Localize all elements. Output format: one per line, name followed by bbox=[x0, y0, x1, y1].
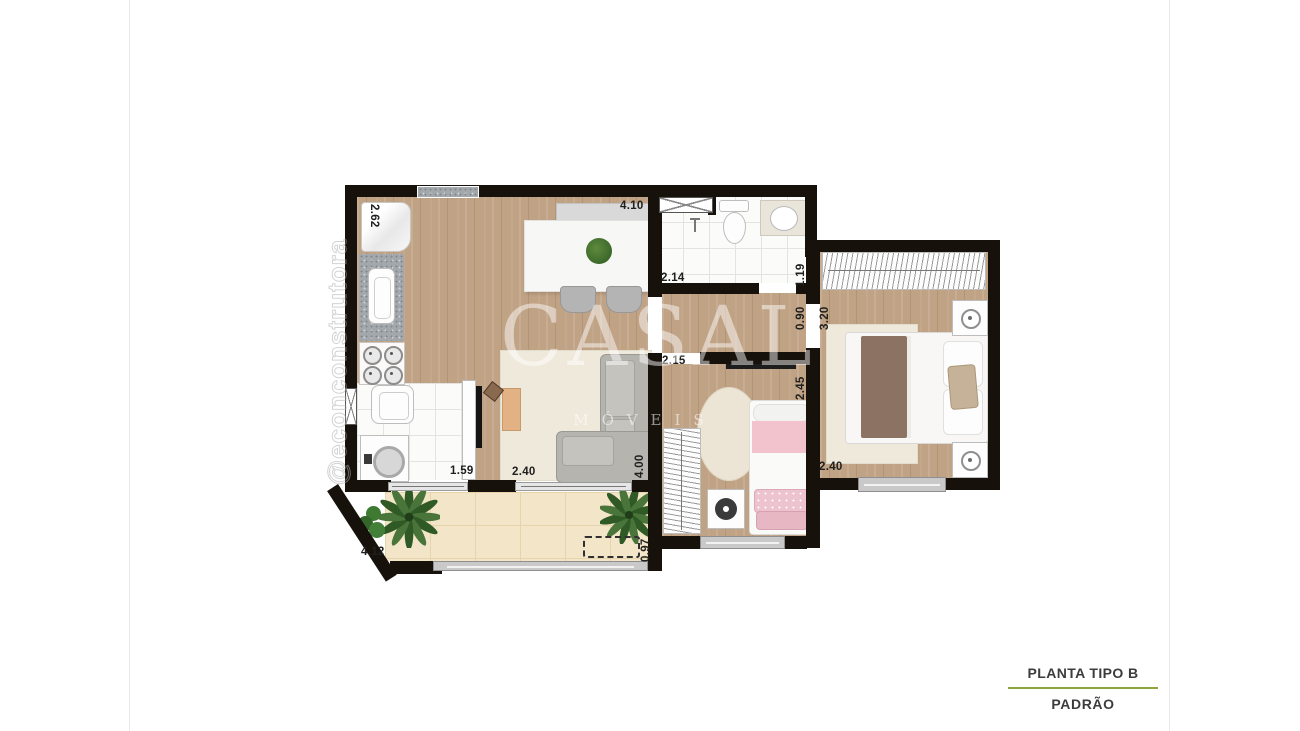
living-sliding-door bbox=[515, 482, 632, 491]
master-bedroom-window bbox=[858, 477, 946, 492]
bedroom2-wardrobe bbox=[663, 428, 701, 534]
dim-bathroom-width: 2.14 bbox=[661, 272, 685, 284]
wall bbox=[345, 480, 391, 492]
burner-icon bbox=[363, 346, 382, 365]
wall bbox=[815, 240, 1000, 252]
pink-pillow bbox=[756, 511, 808, 530]
dining-chair bbox=[606, 286, 642, 313]
sink-basin bbox=[374, 277, 391, 319]
wall bbox=[806, 478, 820, 548]
dim-dining-top: 4.10 bbox=[620, 200, 644, 212]
nightstand bbox=[952, 442, 988, 478]
washing-machine bbox=[360, 435, 409, 482]
single-bed bbox=[749, 400, 814, 535]
left-frame-line bbox=[129, 0, 130, 731]
title-divider bbox=[1008, 687, 1158, 689]
optional-cabinet-marking bbox=[583, 536, 640, 558]
toilet-tank bbox=[719, 200, 749, 212]
wall bbox=[806, 252, 820, 304]
plan-title: PLANTA TIPO B bbox=[1008, 665, 1158, 681]
lamp-icon bbox=[961, 451, 981, 471]
floor-plan-image: 2.62 4.10 2.14 1.19 0.90 3.20 2.15 2.45 … bbox=[0, 0, 1300, 731]
dim-bedroom2-top: 2.15 bbox=[662, 355, 686, 367]
kitchen-sink bbox=[368, 268, 395, 324]
bedroom2-window bbox=[700, 536, 785, 549]
dim-bathroom-side: 1.19 bbox=[795, 263, 807, 287]
right-frame-line bbox=[1169, 0, 1170, 731]
lamp-icon bbox=[961, 309, 981, 329]
shower-head-icon bbox=[694, 218, 696, 232]
dim-master-side: 3.20 bbox=[819, 306, 831, 330]
burner-icon bbox=[384, 346, 403, 365]
bathroom-vanity bbox=[760, 200, 807, 236]
dim-living-side: 4.00 bbox=[634, 454, 646, 478]
tv-icon bbox=[476, 386, 482, 448]
wall bbox=[345, 185, 357, 492]
washer-panel bbox=[364, 454, 372, 464]
bed-runner bbox=[861, 336, 907, 438]
laundry-window bbox=[345, 388, 357, 425]
shower-head-icon bbox=[690, 218, 700, 220]
duvet-fold bbox=[907, 336, 911, 438]
double-bed bbox=[845, 332, 988, 444]
bed-roll bbox=[753, 404, 810, 422]
dim-laundry-opening: 1.59 bbox=[450, 465, 474, 477]
dim-kitchen-side: 2.62 bbox=[368, 204, 380, 228]
laundry-tank bbox=[371, 385, 414, 424]
hall-floor bbox=[662, 292, 806, 353]
wall bbox=[655, 283, 759, 294]
burner-icon bbox=[363, 366, 382, 385]
wall bbox=[806, 348, 820, 478]
kitchen-pass-through bbox=[417, 186, 479, 198]
accent-pillow bbox=[947, 364, 979, 410]
burner-icon bbox=[384, 366, 403, 385]
table-plant-icon bbox=[586, 238, 612, 264]
dim-hall-width: 0.90 bbox=[795, 306, 807, 330]
bathroom-door-opening bbox=[759, 284, 796, 293]
dim-balcony-width: 4.12 bbox=[361, 546, 385, 558]
stove bbox=[359, 342, 405, 385]
sofa-cushion bbox=[605, 360, 635, 417]
vanity-basin bbox=[770, 206, 798, 231]
dining-chair bbox=[560, 286, 596, 313]
wall bbox=[468, 480, 516, 492]
wall bbox=[345, 185, 817, 197]
wall bbox=[988, 240, 1000, 490]
dim-living-width: 2.40 bbox=[512, 466, 536, 478]
title-block: PLANTA TIPO B PADRÃO bbox=[1008, 665, 1158, 712]
master-wardrobe bbox=[822, 252, 986, 290]
nightstand bbox=[952, 300, 988, 336]
plan-subtitle: PADRÃO bbox=[1008, 696, 1158, 712]
dim-balcony-side: 0.97 bbox=[640, 538, 652, 562]
record-center bbox=[723, 506, 729, 512]
balcony-railing bbox=[433, 561, 648, 571]
record-player-table bbox=[707, 489, 745, 529]
laundry-sliding-door bbox=[388, 482, 468, 491]
pink-pillow bbox=[754, 489, 810, 513]
washer-door-icon bbox=[373, 446, 405, 478]
sofa-cushion bbox=[562, 436, 614, 466]
shower-window bbox=[659, 197, 713, 213]
laundry-tank-basin bbox=[379, 392, 409, 420]
dim-bedroom2-side: 2.45 bbox=[795, 376, 807, 400]
pink-blanket bbox=[752, 421, 809, 453]
wall bbox=[700, 352, 806, 364]
side-table bbox=[502, 388, 521, 431]
dim-master-width: 2.40 bbox=[819, 461, 843, 473]
